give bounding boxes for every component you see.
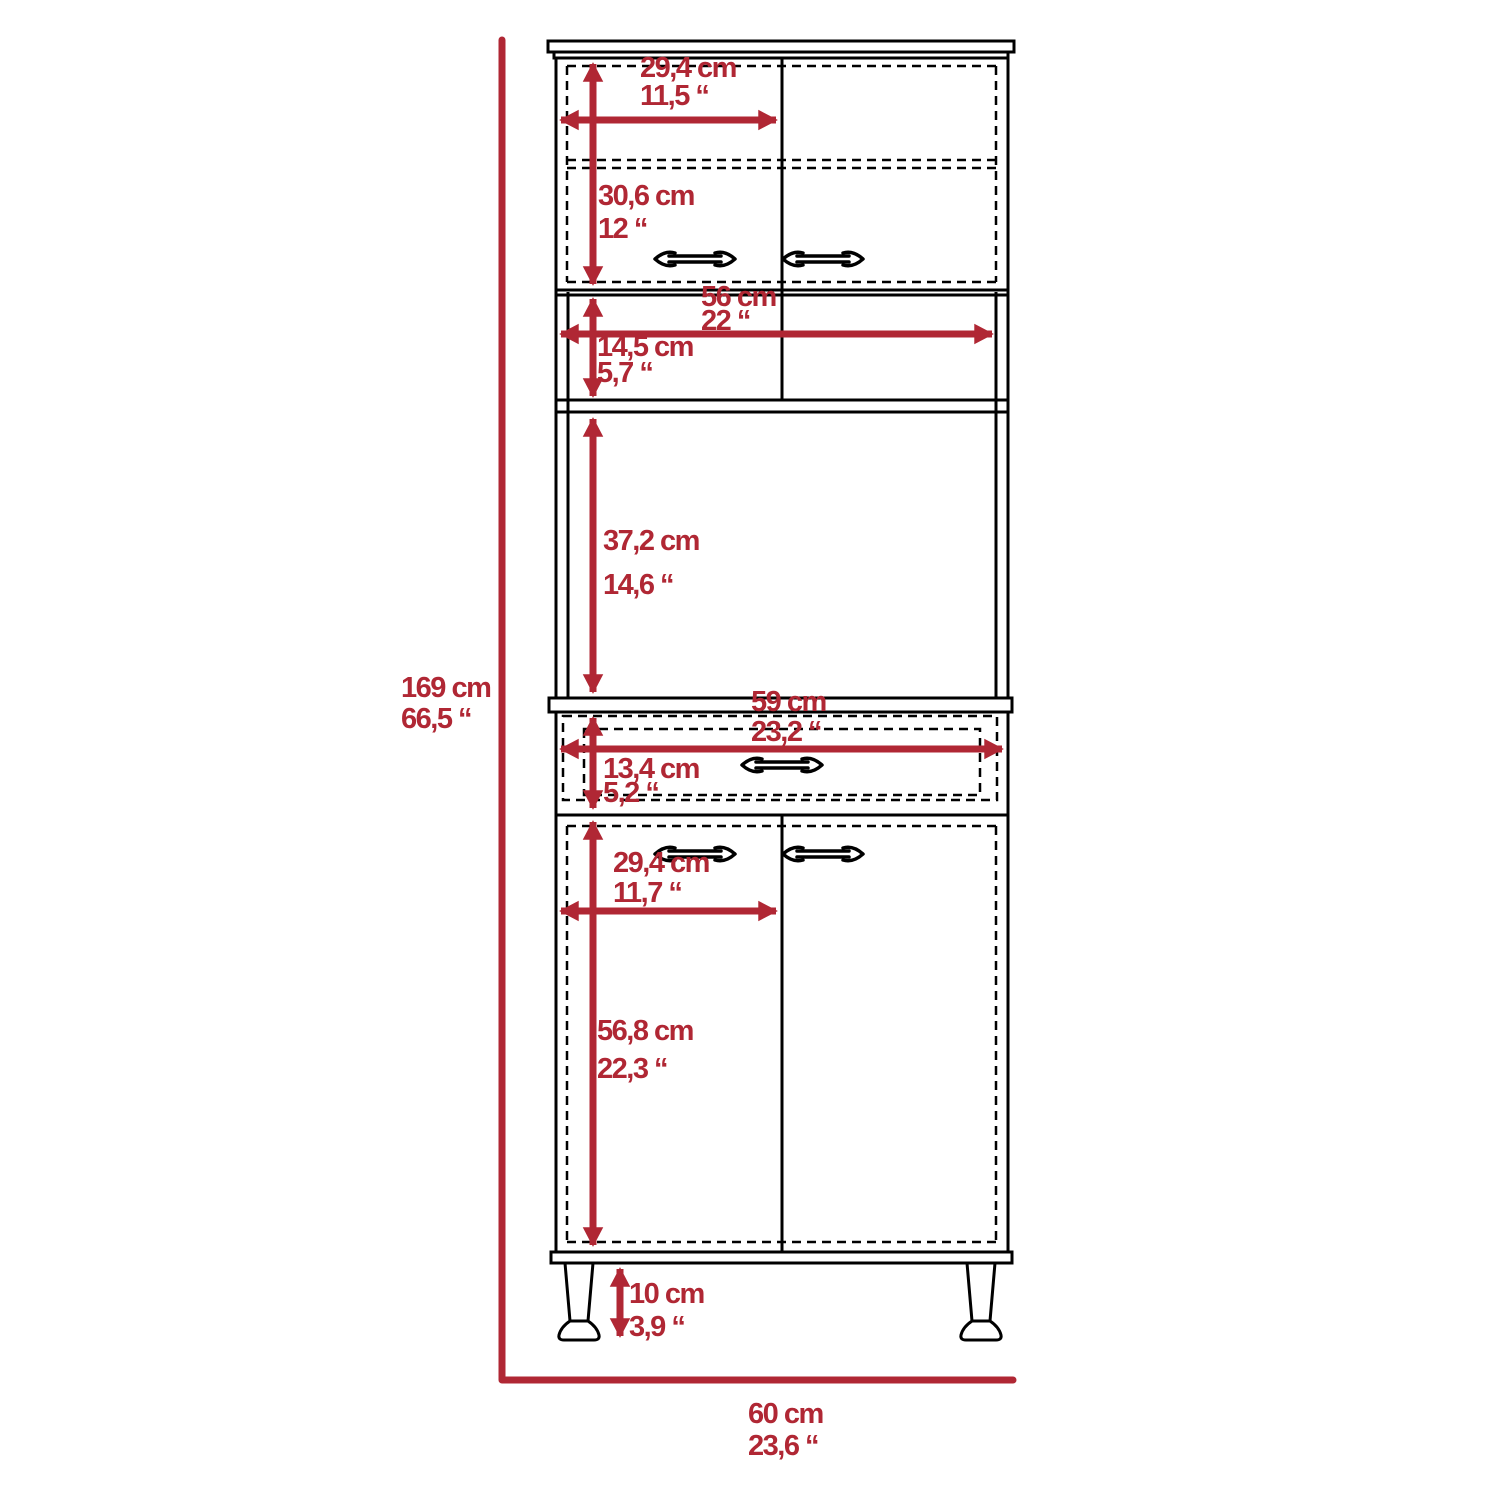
left-leg [559, 1263, 599, 1340]
upper-left-door-handle [655, 252, 735, 266]
shelf-width-in: 22 “ [701, 305, 750, 337]
right-leg [961, 1263, 1001, 1340]
open-space-height-in: 14,6 “ [603, 569, 673, 601]
leg-height-in: 3,9 “ [629, 1311, 684, 1343]
lower-right-door-handle [783, 847, 863, 861]
lower-door-height-cm: 56,8 cm [597, 1015, 693, 1047]
dimension-diagram-page: 29,4 cm 11,5 “ 30,6 cm 12 “ 56 cm 22 “ 1… [0, 0, 1500, 1500]
leg-height-cm: 10 cm [629, 1278, 704, 1310]
overall-height-cm: 169 cm [401, 672, 490, 704]
drawer-handle [742, 758, 822, 772]
upper-door-width-in: 11,5 “ [640, 80, 708, 112]
lower-door-width-cm: 29,4 cm [613, 847, 709, 879]
drawer-height-in: 5,2 “ [603, 777, 658, 809]
drawer-width-cm: 59 cm [751, 686, 826, 718]
upper-door-height-cm: 30,6 cm [598, 180, 694, 212]
upper-door-height-in: 12 “ [598, 213, 647, 245]
lower-door-width-in: 11,7 “ [613, 877, 681, 909]
cabinet-dimension-drawing: 29,4 cm 11,5 “ 30,6 cm 12 “ 56 cm 22 “ 1… [0, 0, 1500, 1500]
overall-width-cm: 60 cm [748, 1398, 823, 1430]
drawer-width-in: 23,2 “ [751, 716, 821, 748]
lower-door-height-in: 22,3 “ [597, 1053, 667, 1085]
bottom-panel [551, 1252, 1012, 1263]
top-panel [548, 41, 1014, 52]
overall-width-in: 23,6 “ [748, 1430, 818, 1462]
open-space-height-cm: 37,2 cm [603, 525, 699, 557]
upper-right-door-handle [783, 252, 863, 266]
shelf-height-in: 5,7 “ [597, 357, 652, 389]
overall-height-in: 66,5 “ [401, 703, 471, 735]
